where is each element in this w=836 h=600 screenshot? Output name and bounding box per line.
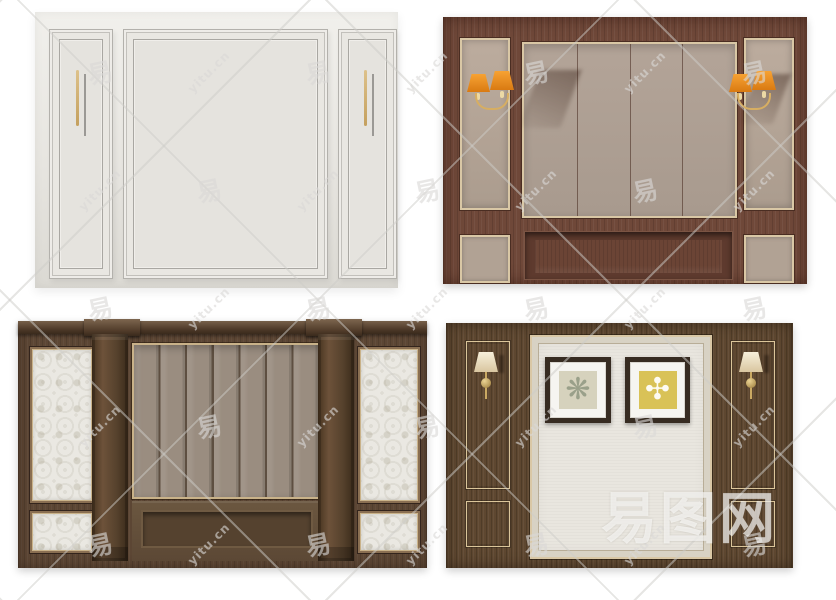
light-shadow-line: [372, 74, 374, 136]
render-redwood-paneling: [443, 17, 807, 284]
wainscot-recessed-panel: [141, 510, 313, 548]
damask-panel-small-left: [30, 511, 94, 553]
wall-sconce-left: [467, 65, 523, 115]
lamp-shadow: [518, 70, 581, 128]
framed-artwork-right: ✣: [625, 357, 690, 423]
lampshade-icon: [467, 74, 490, 92]
center-slat-panel: [132, 343, 322, 499]
slat-shading: [134, 345, 320, 497]
sconce-backplate-icon: [746, 378, 756, 388]
render-brown-wood-art-paneling: ❋ ✣: [446, 323, 793, 568]
gold-outline-small-right: [731, 501, 775, 547]
pilaster-left: [92, 334, 128, 561]
lampshade-icon: [729, 74, 752, 92]
lower-recessed-panel: [524, 231, 733, 280]
framed-artwork-left: ❋: [545, 357, 611, 423]
sconce-arm-icon: [737, 93, 771, 110]
render-white-classic-paneling: [35, 12, 398, 288]
cornice: [18, 321, 427, 334]
cross-motif-icon: ✣: [639, 371, 677, 409]
side-panel-right: [744, 38, 794, 210]
lower-square-panel-right: [744, 235, 794, 283]
recessed-panel-inner: [535, 240, 722, 273]
wall-sconce-right: [738, 347, 768, 409]
sconce-arm-icon: [475, 93, 509, 110]
light-shadow-line: [84, 74, 86, 136]
damask-panel-tall-right: [358, 347, 420, 503]
lampshade-icon: [752, 71, 776, 90]
render-walnut-damask-paneling: [18, 321, 427, 568]
damask-panel-small-right: [358, 511, 420, 553]
center-panel: [123, 29, 328, 279]
lampshade-icon: [490, 71, 514, 90]
sconce-backplate-icon: [481, 378, 491, 388]
side-panel-right: [338, 29, 397, 279]
side-panel-left: [49, 29, 113, 279]
wall-paneling-collage: ❋ ✣ 易yitu.cn易yitu.cn易yitu.cn易yitu.cn易yit…: [0, 0, 836, 600]
slim-wall-light-icon: [364, 70, 367, 126]
lampshade-icon: [739, 352, 763, 372]
slim-wall-light-icon: [76, 70, 79, 126]
pilaster-right: [318, 334, 354, 561]
lower-square-panel-left: [460, 235, 510, 283]
damask-panel-tall-left: [30, 347, 94, 503]
wainscot: [132, 501, 322, 561]
side-panel-left: [460, 38, 510, 210]
damask-motif-icon: ❋: [559, 371, 597, 409]
watermark-text: 易: [411, 170, 443, 210]
lamp-shadow: [764, 355, 769, 373]
panel-seam: [630, 44, 631, 216]
lamp-shadow: [499, 355, 504, 373]
center-fabric-panel: ❋ ✣: [530, 335, 712, 559]
gold-outline-small-left: [466, 501, 510, 547]
wall-sconce-right: [729, 65, 785, 115]
wall-sconce-left: [473, 347, 503, 409]
panel-seam: [682, 44, 683, 216]
center-panel: [522, 42, 737, 218]
lampshade-icon: [474, 352, 498, 372]
